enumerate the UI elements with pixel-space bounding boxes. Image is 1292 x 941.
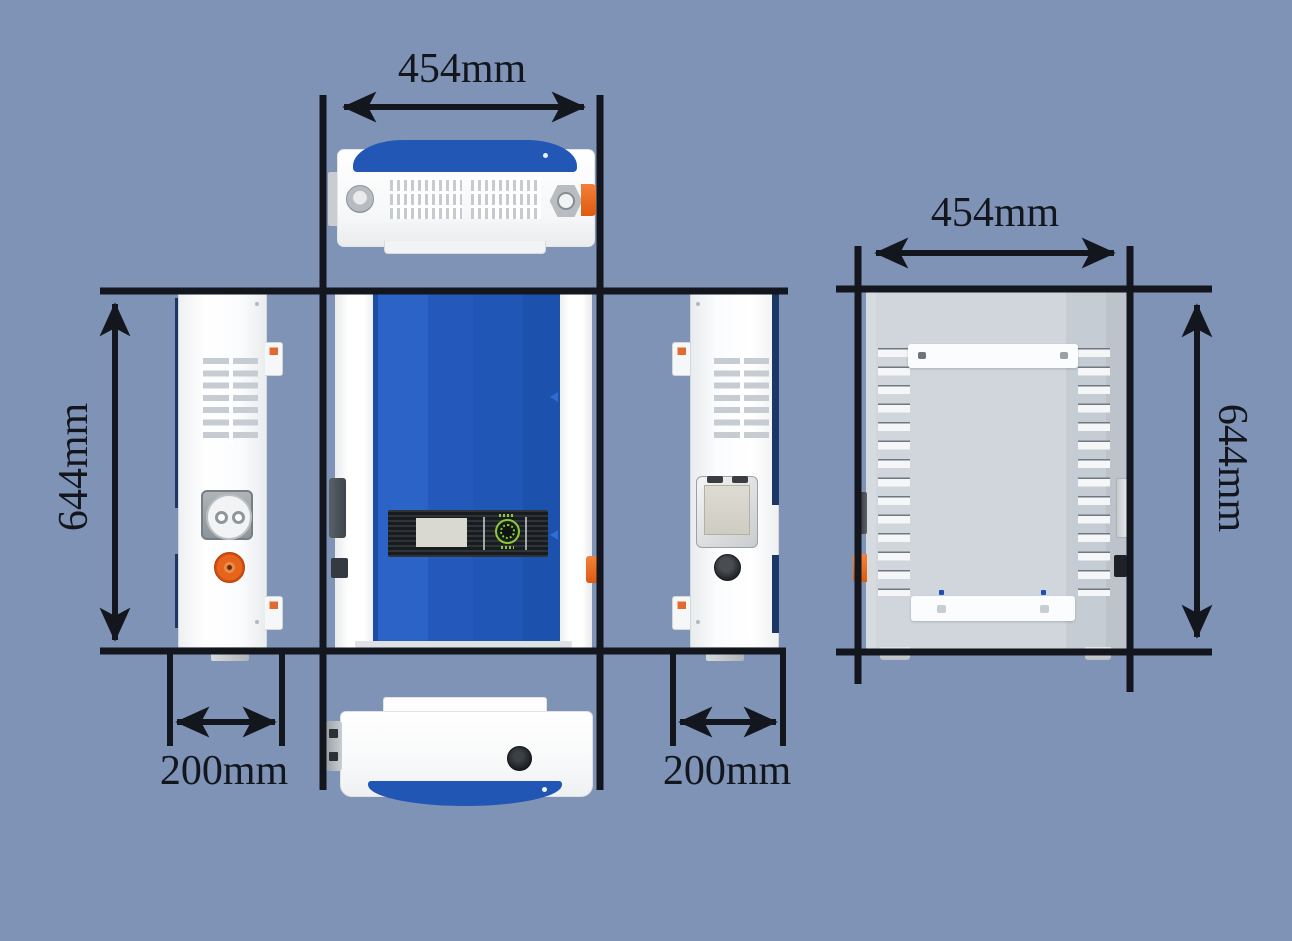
blue-front-door	[373, 292, 560, 649]
front-view	[335, 292, 592, 649]
socket-pin	[232, 511, 245, 524]
blue-front-edge	[368, 781, 562, 806]
back-view	[866, 292, 1128, 667]
dimension-label-left-depth: 200mm	[104, 748, 344, 794]
warning-sticker	[677, 601, 686, 609]
bracket-slot	[937, 605, 946, 613]
brand-logo	[495, 519, 520, 544]
foot	[211, 648, 249, 661]
indicator-dot	[542, 787, 547, 792]
warning-sticker	[269, 347, 278, 355]
hinge-block	[331, 558, 348, 578]
mount-bracket	[672, 596, 690, 630]
screw	[1060, 352, 1068, 359]
rear-flange	[384, 241, 546, 254]
bottom-trim	[355, 641, 572, 649]
orange-fitting	[586, 556, 601, 583]
left-side-view	[175, 290, 285, 665]
black-knob	[714, 554, 741, 581]
warning-sticker	[677, 347, 686, 355]
gland-core	[557, 192, 575, 210]
orange-fitting	[853, 554, 867, 582]
socket-pin	[215, 511, 228, 524]
screw	[696, 302, 700, 306]
dimension-label-front-height: 644mm	[51, 347, 97, 587]
breaker-cover	[696, 476, 758, 548]
side-panel	[178, 292, 267, 648]
screw	[255, 302, 259, 306]
screw-hole	[939, 590, 944, 595]
vent-louvers-left	[878, 348, 910, 596]
vent-louvers	[714, 358, 769, 444]
logo-text-bottom	[501, 546, 514, 549]
wall-mount-bracket-bottom	[911, 596, 1075, 621]
side-strip-left	[335, 292, 373, 649]
edge-trim	[772, 555, 779, 633]
door-latch	[329, 478, 346, 538]
vent-grille-left	[390, 177, 462, 219]
socket-face	[206, 494, 252, 540]
top-view	[337, 140, 593, 256]
screw-hole	[1041, 590, 1046, 595]
connector-slot	[329, 729, 338, 738]
edge-trim	[772, 292, 779, 505]
cable-port	[507, 746, 532, 771]
side-connector	[1114, 555, 1127, 577]
mount-bracket	[265, 596, 283, 630]
dimension-label-top-width: 454mm	[342, 46, 582, 92]
cover-notch	[707, 476, 723, 483]
orange-knob	[214, 552, 245, 583]
divider	[483, 517, 485, 550]
right-side-view	[672, 290, 782, 665]
foot	[880, 647, 910, 660]
cover-notch	[732, 476, 748, 483]
warning-sticker	[269, 601, 278, 609]
dimension-label-back-width: 454mm	[875, 190, 1115, 236]
vent-louvers	[203, 358, 258, 444]
screw	[255, 620, 259, 624]
dimension-label-right-depth: 200mm	[607, 748, 847, 794]
display-bar	[388, 510, 548, 557]
bottom-view	[328, 695, 600, 810]
dimension-label-back-height: 644mm	[1209, 348, 1255, 588]
vent-louvers-right	[1078, 348, 1110, 596]
side-strip-right	[560, 292, 592, 649]
bracket-slot	[1040, 605, 1049, 613]
screw	[696, 620, 700, 624]
foot	[1085, 647, 1111, 660]
side-panel	[690, 292, 779, 648]
lcd-screen	[416, 518, 467, 547]
mount-bracket	[672, 342, 690, 376]
product-dimension-diagram: 454mm 454mm 644mm 644mm 200mm 200mm	[0, 0, 1292, 941]
vent-grille-right	[471, 177, 541, 219]
indicator-dot	[543, 153, 548, 158]
cable-gland-left	[346, 185, 374, 213]
side-bracket	[1116, 478, 1130, 538]
side-connector-cap	[856, 492, 867, 534]
cover-window	[704, 485, 750, 535]
foot	[706, 648, 744, 661]
wall-mount-bracket-top	[908, 344, 1078, 368]
power-socket	[201, 490, 253, 540]
orange-fitting	[581, 184, 596, 216]
brand-logo-core	[500, 524, 515, 539]
divider	[525, 517, 527, 550]
screw	[918, 352, 926, 359]
mount-bracket	[265, 342, 283, 376]
logo-text-top	[499, 514, 515, 517]
